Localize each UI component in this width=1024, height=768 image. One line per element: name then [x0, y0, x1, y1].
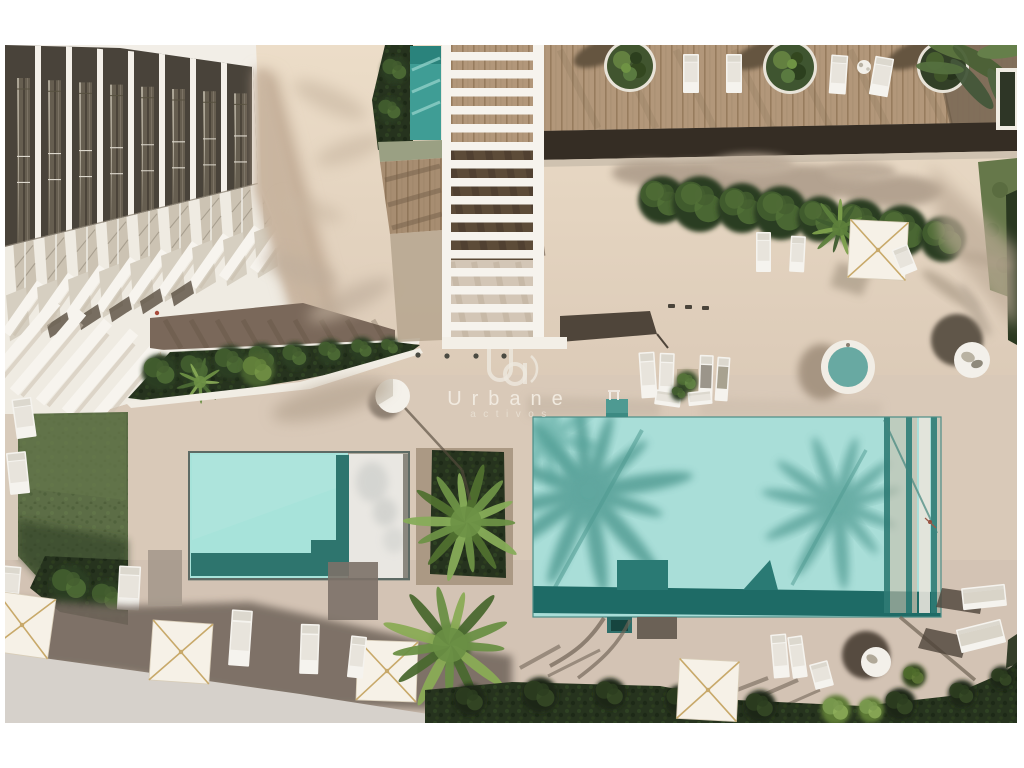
svg-text:Urbane: Urbane	[447, 388, 573, 410]
svg-text:activos: activos	[470, 409, 554, 420]
